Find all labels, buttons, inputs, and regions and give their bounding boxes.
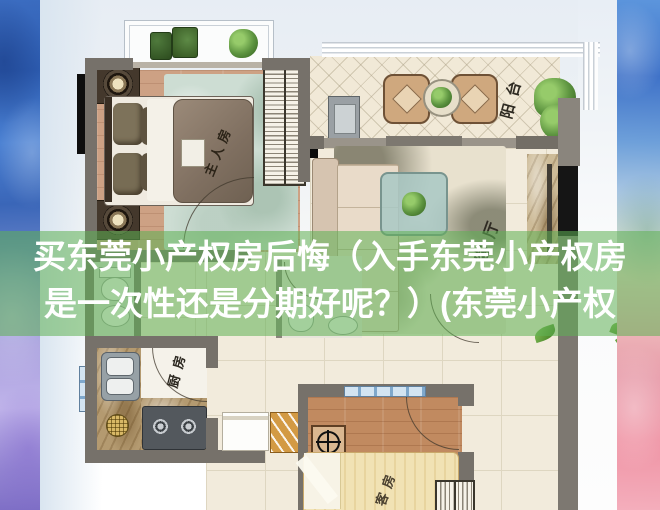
wall xyxy=(558,98,580,166)
wall xyxy=(85,450,265,463)
wall xyxy=(516,136,562,149)
kitchen-sink xyxy=(101,352,140,401)
planter-icon xyxy=(172,27,198,58)
balcony-table xyxy=(423,79,461,117)
bed-pillow xyxy=(113,153,143,195)
wall xyxy=(85,336,97,462)
balcony-threshold xyxy=(133,62,262,68)
wall xyxy=(458,452,474,480)
cabinet-top-line xyxy=(223,416,268,420)
wall xyxy=(206,336,218,368)
lamp-icon xyxy=(103,69,133,99)
bed-sheet xyxy=(147,99,175,201)
bed-pillow xyxy=(113,103,143,145)
bed-headboard xyxy=(105,97,112,202)
washing-machine xyxy=(328,96,360,140)
table-plant-icon xyxy=(402,192,426,216)
balcony-railing-top xyxy=(322,42,600,57)
column-symbol-cross xyxy=(316,441,341,443)
burner-icon xyxy=(148,414,173,439)
planter-icon xyxy=(150,32,172,60)
sink-basin xyxy=(106,357,134,376)
floorplan-thumbnail: 主人房 阳台 客厅 xyxy=(0,0,660,510)
column-symbol-circle xyxy=(317,431,340,454)
sink-basin xyxy=(106,378,134,395)
washing-machine-door xyxy=(334,104,356,134)
floor-drain-icon xyxy=(106,414,129,437)
title-line-2: 是一次性还是分期好呢？）(东莞小产权 xyxy=(0,286,660,322)
burner-icon xyxy=(176,414,201,439)
plant-icon xyxy=(431,87,452,108)
coffee-table xyxy=(380,172,448,236)
wall xyxy=(85,336,218,348)
guest-wardrobe xyxy=(435,480,475,510)
wall xyxy=(85,58,133,70)
wall xyxy=(310,136,324,149)
balcony-railing-right xyxy=(583,42,598,110)
wall xyxy=(298,58,310,182)
wall xyxy=(458,384,474,406)
white-cabinet xyxy=(222,412,269,451)
title-line-1: 买东莞小产权房后悔（入手东莞小产权房 xyxy=(0,239,660,275)
stove xyxy=(142,406,207,450)
guest-room-window xyxy=(344,386,426,397)
black-column xyxy=(558,166,578,236)
wall xyxy=(206,418,218,463)
